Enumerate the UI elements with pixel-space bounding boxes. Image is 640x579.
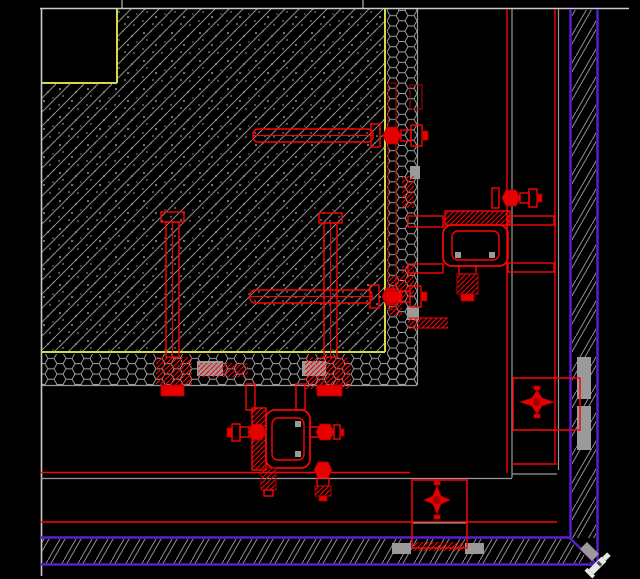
swivel-connector-bottom[interactable]: [227, 384, 344, 496]
finish-band-bottom: [41, 538, 597, 566]
serrated-foot[interactable]: [156, 357, 192, 385]
concrete-column-section: [42, 9, 385, 352]
cladding-lines-bottom: [41, 464, 557, 522]
axle-bolt-left[interactable]: [227, 424, 266, 441]
embed-plate[interactable]: [577, 406, 591, 450]
hex-nut[interactable]: [502, 190, 520, 206]
bolt-plan-core: [433, 496, 441, 504]
hex-nut[interactable]: [383, 127, 401, 144]
embed-plate[interactable]: [392, 543, 411, 554]
finish-band-right: [571, 9, 598, 565]
band-hatch-right: [572, 10, 596, 538]
drawing-canvas: [0, 0, 640, 579]
cad-drawing: [0, 0, 640, 579]
bolt-collar[interactable]: [520, 193, 529, 203]
shank-tip[interactable]: [461, 294, 474, 301]
bolt-washer[interactable]: [492, 188, 499, 208]
arm-to-mullion-upper[interactable]: [508, 216, 554, 225]
serrated-shank[interactable]: [261, 468, 276, 490]
bolt-tip[interactable]: [340, 429, 344, 436]
corner-gusset: [295, 421, 301, 427]
shank-tip[interactable]: [264, 490, 273, 496]
adjusting-bolt-right[interactable]: [492, 188, 542, 208]
bolt-tip[interactable]: [227, 428, 232, 437]
hanger-link[interactable]: [296, 384, 305, 410]
bolt-bar: [434, 481, 440, 485]
swivel-connector-right[interactable]: [408, 188, 554, 301]
bolt-end-washer[interactable]: [334, 425, 340, 439]
foot-cap[interactable]: [161, 385, 184, 396]
bolt-end-washer[interactable]: [529, 189, 537, 207]
arm-to-mullion-lower[interactable]: [508, 263, 554, 272]
bolt-tip[interactable]: [422, 131, 428, 140]
serrated-shank[interactable]: [457, 274, 478, 294]
band-hatch-bottom: [42, 539, 568, 564]
hex-nut[interactable]: [248, 424, 266, 440]
serrated-foot[interactable]: [306, 357, 348, 385]
weld-mark-arm[interactable]: [408, 318, 448, 328]
bolt-plan-core: [533, 398, 541, 406]
weld-mark[interactable]: [402, 176, 414, 208]
embed-plate[interactable]: [465, 543, 484, 554]
bolt-collar[interactable]: [317, 478, 329, 486]
hex-nut[interactable]: [314, 462, 332, 478]
axle-bolt-right[interactable]: [310, 424, 344, 440]
bolt-end-washer[interactable]: [232, 424, 240, 441]
anchor-bolt-bottom-small[interactable]: [314, 462, 332, 501]
serrated-shank[interactable]: [315, 486, 331, 496]
hex-nut[interactable]: [316, 424, 334, 440]
weld-mark[interactable]: [198, 363, 248, 377]
bolt-tip[interactable]: [537, 194, 542, 202]
insulation-notch: [42, 9, 117, 83]
hanger-link[interactable]: [246, 384, 255, 410]
corner-gusset: [455, 252, 461, 258]
corner-gusset: [295, 451, 301, 457]
bolt-bar: [434, 515, 440, 519]
bolt-tip[interactable]: [421, 292, 427, 301]
bolt-tip[interactable]: [319, 496, 327, 501]
foot-cap[interactable]: [317, 385, 342, 396]
weld-mark: [414, 542, 464, 551]
corner-gusset: [489, 252, 495, 258]
bolt-collar[interactable]: [459, 266, 476, 274]
serrated-bar[interactable]: [445, 211, 510, 225]
